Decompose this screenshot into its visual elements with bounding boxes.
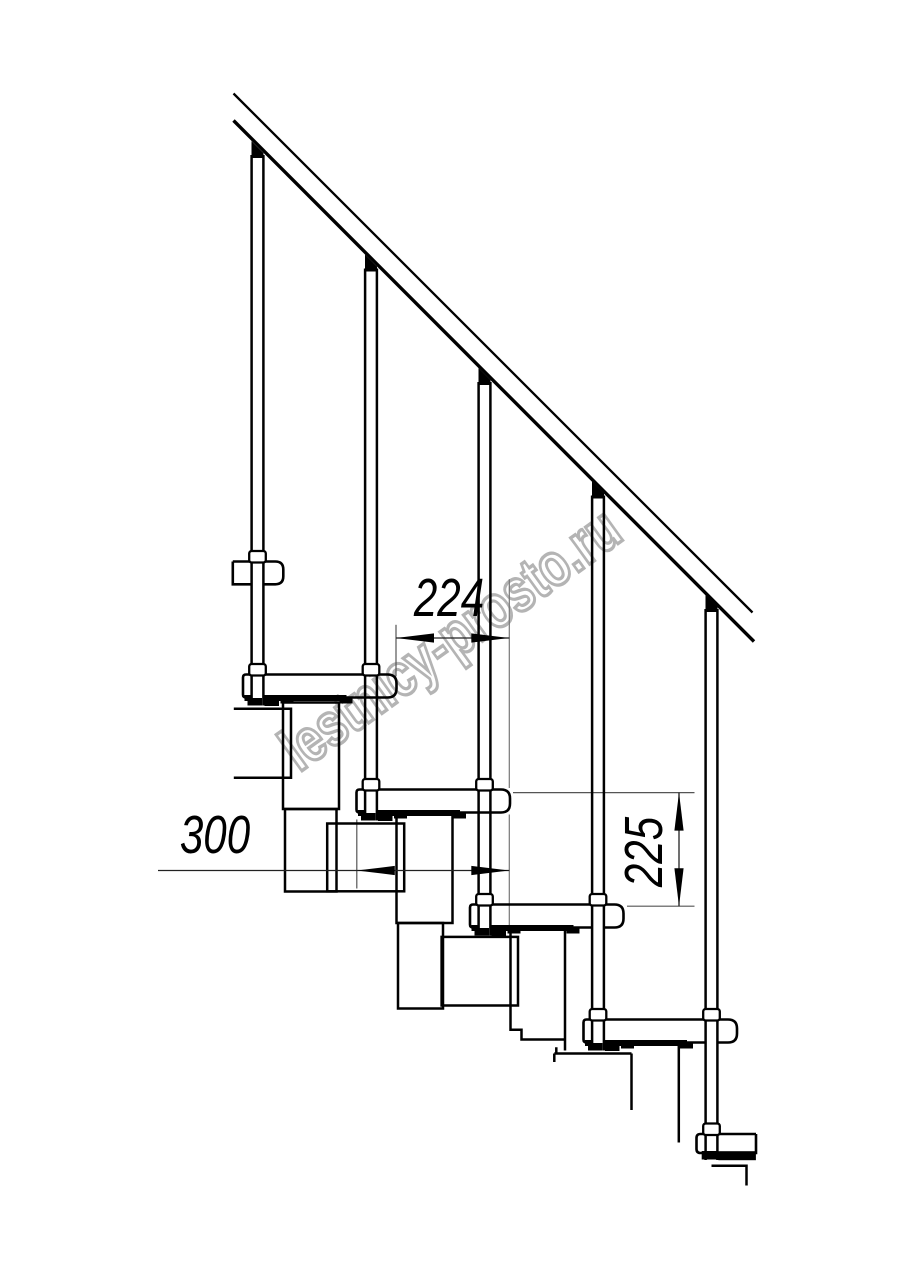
svg-text:300: 300	[180, 805, 250, 865]
svg-text:224: 224	[413, 568, 484, 628]
svg-text:225: 225	[614, 816, 674, 888]
